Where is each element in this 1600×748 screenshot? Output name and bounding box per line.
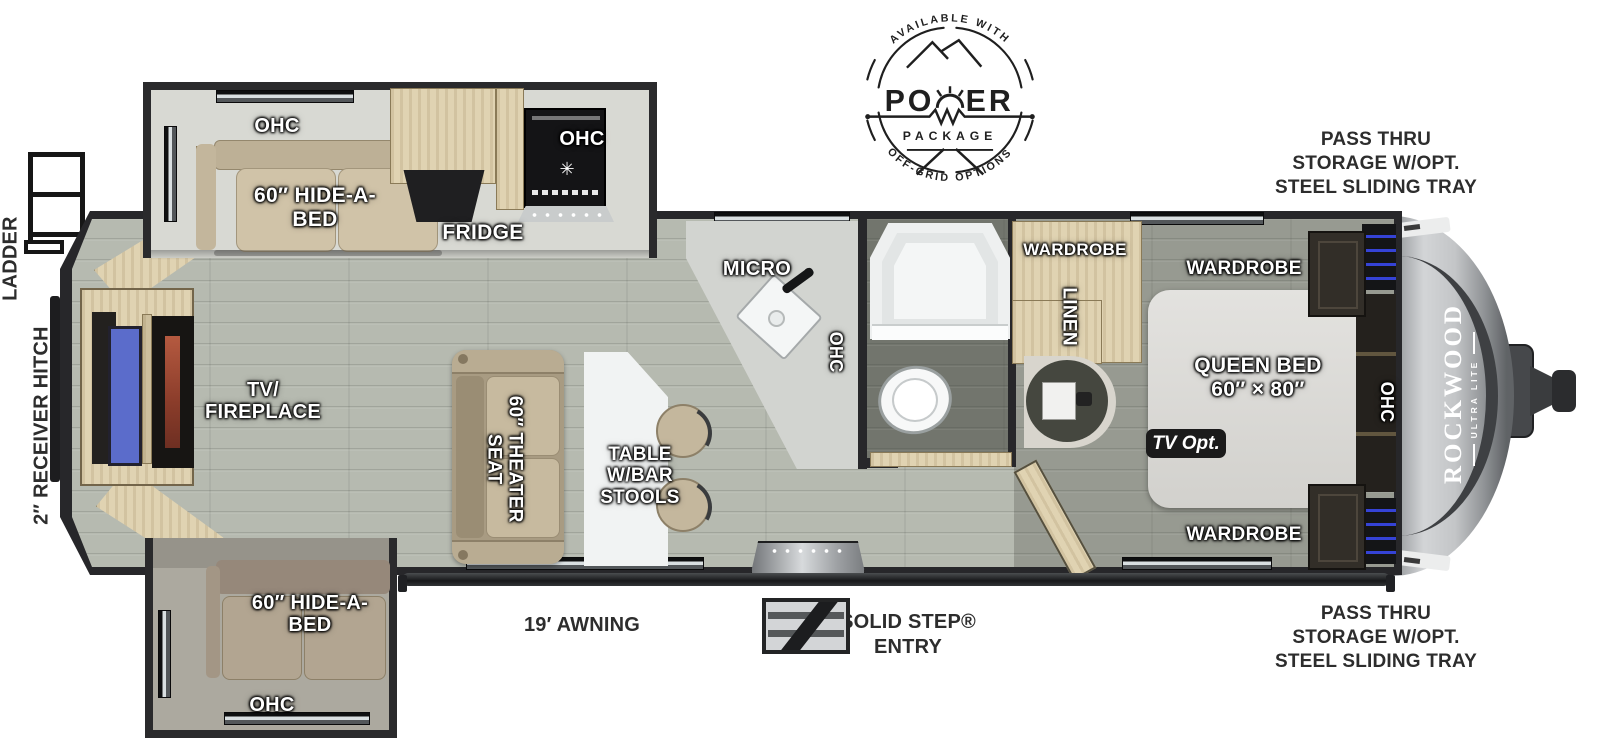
badge-package: PACKAGE <box>903 129 997 143</box>
theater-seat-label: 60″ THEATER SEAT <box>483 394 526 524</box>
pass-thru-storage-bottom <box>1362 498 1396 564</box>
rear-bumper <box>50 296 60 482</box>
pass-thru-storage-label-bottom: PASS THRU STORAGE W/OPT. STEEL SLIDING T… <box>1226 602 1526 674</box>
table-bar-stools-label: TABLE W/BAR STOOLS <box>590 444 690 508</box>
floorplan-canvas: AVAILABLE WITH PO ER PACKAGE OFF-GRID OP… <box>0 0 1600 748</box>
range-knob-panel <box>518 206 614 222</box>
linen-cabinet <box>1012 300 1102 364</box>
power-package-badge: AVAILABLE WITH PO ER PACKAGE OFF-GRID OP… <box>852 6 1048 194</box>
kitchen-counter-column <box>496 88 524 210</box>
ohc-label-slide-top: OHC <box>227 115 327 137</box>
shower-pan <box>894 243 986 319</box>
badge-power-right: ER <box>966 85 1014 118</box>
tv-fireplace-line1: TV/ <box>183 379 343 401</box>
hide-a-bed-label-top: 60″ HIDE-A-BED <box>250 184 380 231</box>
bed-head-shelf-line1 <box>1356 352 1396 356</box>
sink-drain <box>768 310 785 327</box>
hitch-knob <box>1552 370 1576 412</box>
bedroom-window-bottom <box>1122 557 1272 570</box>
queen-bed-label-line2: 60″ × 80″ <box>1158 378 1358 402</box>
toilet-seat <box>892 378 938 422</box>
range-ohc-unit: ✳ <box>524 108 606 208</box>
badge-mountains-icon <box>907 40 981 67</box>
tv-fireplace-label: TV/ FIREPLACE <box>183 379 343 424</box>
slide-bottom-window-left <box>158 610 171 698</box>
pass-thru-bottom-line1: PASS THRU <box>1226 602 1526 626</box>
bedroom-window-top <box>1130 212 1264 225</box>
brand-model: ROCKWOOD <box>1441 314 1466 484</box>
pass-thru-top-line3: STEEL SLIDING TRAY <box>1226 176 1526 200</box>
tv-screen <box>108 326 142 466</box>
entry-steps-icon <box>762 598 850 654</box>
slide-top-window <box>216 90 354 103</box>
trim-dash-left <box>1473 444 1475 466</box>
wardrobe-label-bed-bottom: WARDROBE <box>1174 524 1314 545</box>
slide-top-window-left <box>164 126 177 222</box>
awning-endcap-left <box>398 575 407 592</box>
wardrobe-label-bed-top: WARDROBE <box>1174 258 1314 279</box>
burner-icon: ✳ <box>552 154 582 184</box>
brand-trim-row: ULTRA LITE <box>1469 314 1479 484</box>
tv-opt-badge: TV Opt. <box>1146 429 1226 458</box>
entry-door <box>750 541 866 577</box>
fireplace-flame <box>165 336 180 448</box>
badge-off-grid: OFF-GRID OPTIONS <box>885 146 1015 184</box>
micro-label: MICRO <box>707 258 807 280</box>
badge-line-dot-right <box>1030 114 1035 119</box>
pass-thru-bottom-line3: STEEL SLIDING TRAY <box>1226 650 1526 674</box>
awning-bar <box>402 573 1390 586</box>
pass-thru-storage-top <box>1362 224 1396 290</box>
brand-block: ROCKWOOD ULTRA LITE <box>1441 314 1487 484</box>
fridge-cabinet <box>390 88 496 184</box>
ohc-label-range: OHC <box>532 128 632 150</box>
badge-line-dot-left <box>865 114 870 119</box>
pass-thru-top-line1: PASS THRU <box>1226 128 1526 152</box>
linen-label: LINEN <box>1058 269 1079 365</box>
shower-ledge <box>872 324 1008 340</box>
queen-bed-label: QUEEN BED 60″ × 80″ <box>1158 354 1358 401</box>
vanity-faucet <box>1076 392 1092 406</box>
badge-power-left: PO <box>885 85 935 118</box>
awning-endcap-right <box>1386 575 1395 592</box>
tv-fireplace-line2: FIREPLACE <box>183 401 343 423</box>
wall-kitchen-bath <box>858 219 867 469</box>
trim-dash-right <box>1473 332 1475 354</box>
entertainment-divider <box>142 314 152 464</box>
wardrobe-label-bath: WARDROBE <box>1015 240 1135 259</box>
ohc-label-counter: OHC <box>826 317 846 387</box>
pass-thru-top-line2: STORAGE W/OPT. <box>1226 152 1526 176</box>
ladder-label: LADDER <box>0 189 24 329</box>
svg-text:OFF-GRID OPTIONS: OFF-GRID OPTIONS <box>885 146 1015 184</box>
hide-a-bed-label-bottom: 60″ HIDE-A-BED <box>245 592 375 637</box>
ohc-label-bed: OHC <box>1377 367 1397 437</box>
wardrobe-cabinet-top <box>1308 231 1366 317</box>
awning-label: 19′ AWNING <box>492 613 672 638</box>
bath-threshold <box>870 452 1012 467</box>
queen-bed-label-line1: QUEEN BED <box>1158 354 1358 378</box>
ohc-label-slide-bottom: OHC <box>212 694 332 716</box>
pass-thru-storage-label-top: PASS THRU STORAGE W/OPT. STEEL SLIDING T… <box>1226 128 1526 200</box>
badge-sun-icon <box>937 86 962 108</box>
wardrobe-cabinet-bottom <box>1308 484 1366 570</box>
vanity-sink <box>1042 382 1076 420</box>
brand-trim: ULTRA LITE <box>1469 360 1479 439</box>
fridge-label: FRIDGE <box>423 221 543 245</box>
pass-thru-bottom-line2: STORAGE W/OPT. <box>1226 626 1526 650</box>
